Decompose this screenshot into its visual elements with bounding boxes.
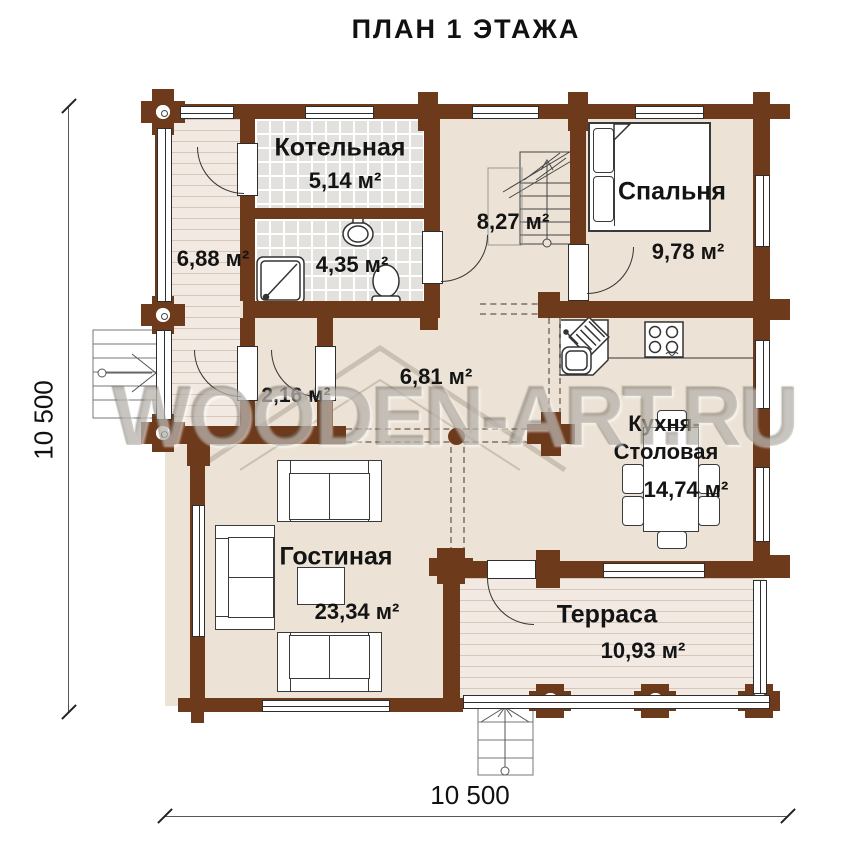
window	[603, 563, 705, 578]
window	[262, 700, 390, 712]
wall-interior	[424, 281, 440, 301]
sofa-cushion	[329, 473, 370, 520]
left-dimension-line	[68, 106, 69, 712]
sofa-arm	[368, 460, 382, 522]
pillow	[593, 176, 614, 222]
wall-interior	[570, 298, 586, 318]
window	[755, 467, 770, 542]
bottom-dimension-label: 10 500	[430, 780, 510, 811]
room-label-bedroom: Спальня	[618, 178, 726, 207]
log-joint	[420, 318, 438, 330]
log-joint	[538, 292, 560, 318]
log-joint	[770, 299, 790, 320]
post-circle	[156, 105, 170, 119]
sofa-cushion	[289, 635, 331, 679]
wall-interior	[255, 208, 424, 219]
sofa-arm	[368, 632, 382, 692]
pillow	[593, 128, 614, 173]
window	[180, 106, 234, 119]
watermark: WOODEN-ART.RU	[112, 368, 796, 465]
window	[157, 128, 172, 302]
left-dimension-label: 10 500	[29, 380, 60, 460]
sofa-cushion	[228, 537, 274, 579]
sofa-cushion	[289, 473, 331, 520]
door-leaf	[568, 244, 589, 301]
log-joint	[536, 550, 560, 588]
room-label-boiler: Котельная	[275, 134, 406, 163]
window	[305, 106, 374, 119]
room-area-living: 23,34 м²	[315, 599, 400, 625]
wall-interior	[570, 119, 586, 245]
sofa-cushion	[228, 577, 274, 618]
wall-interior	[424, 119, 440, 231]
window	[472, 106, 539, 119]
boiler-room-floor	[255, 119, 424, 208]
dimension-tick	[61, 98, 77, 114]
chair	[622, 464, 644, 494]
room-area-stair-hall: 8,27 м²	[477, 209, 550, 235]
plan-title: ПЛАН 1 ЭТАЖА	[166, 14, 766, 45]
window	[755, 175, 770, 247]
sofa-cushion	[329, 635, 370, 679]
wall-interior	[240, 119, 255, 145]
terrace-railing	[753, 580, 767, 694]
room-label-terrace: Терраса	[557, 601, 658, 630]
room-area-bedroom: 9,78 м²	[652, 239, 725, 265]
sofa-back	[277, 677, 382, 692]
floor-plan: ПЛАН 1 ЭТАЖА 10 500 10 500	[0, 0, 850, 850]
room-area-boiler: 5,14 м²	[309, 168, 382, 194]
bottom-dimension-line	[165, 816, 788, 817]
wall-interior	[240, 318, 255, 346]
terrace-railing	[463, 695, 770, 709]
blanket-edge	[614, 124, 615, 226]
chair	[657, 531, 687, 549]
window	[635, 106, 704, 119]
room-area-kitchen: 14,74 м²	[644, 477, 729, 503]
dimension-tick	[61, 704, 77, 720]
door-leaf	[487, 560, 536, 579]
sofa-arm	[215, 616, 275, 630]
window	[192, 505, 205, 637]
chair	[622, 496, 644, 526]
log-joint	[178, 698, 190, 712]
room-label-living: Гостиная	[280, 543, 393, 572]
log-joint	[770, 555, 790, 578]
room-area-bathroom: 4,35 м²	[316, 252, 389, 278]
door-leaf	[422, 231, 443, 284]
entry-steps	[478, 705, 533, 775]
room-area-terrace: 10,93 м²	[601, 638, 686, 664]
post-circle	[156, 308, 170, 322]
room-area-hallway: 6,88 м²	[177, 246, 250, 272]
wall-interior	[243, 301, 440, 318]
log-joint	[770, 104, 790, 119]
log-joint	[191, 712, 204, 723]
wall-interior	[317, 318, 333, 346]
